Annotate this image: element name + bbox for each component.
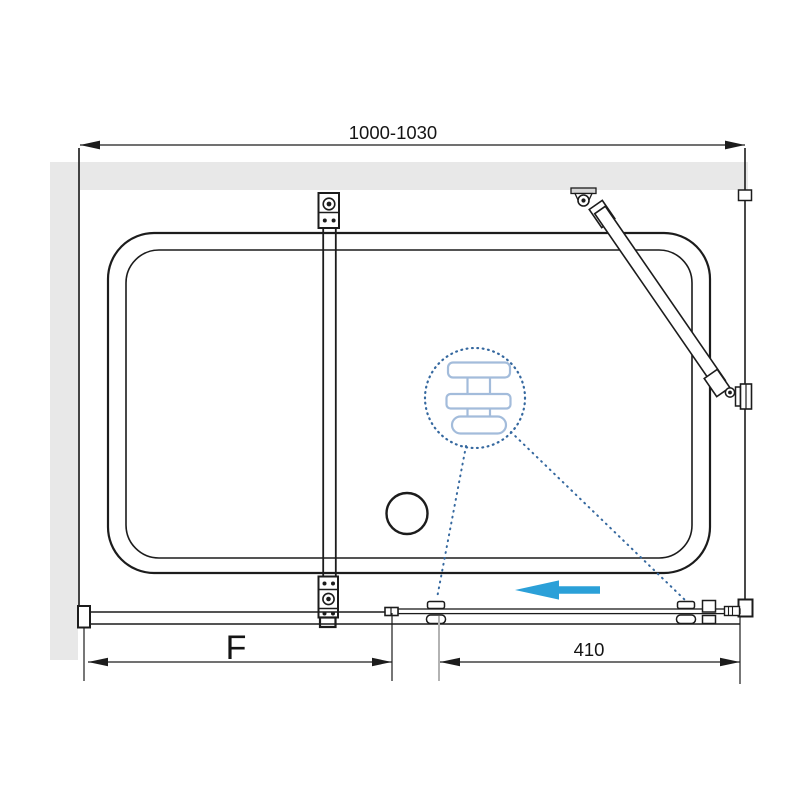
dimension-fixed-width: F — [84, 613, 392, 681]
ceiling-mount-plate — [571, 188, 596, 194]
top-mount-bracket — [319, 193, 340, 228]
left-wall — [50, 162, 78, 660]
side-glass-panel — [739, 148, 753, 617]
walls — [50, 162, 748, 660]
dim-arrow-right — [725, 141, 745, 150]
tray-inner-rim — [126, 250, 692, 558]
roller-mechanism-detail — [447, 363, 511, 434]
dim-fixed-width-label: F — [226, 629, 247, 667]
top-wall — [78, 162, 748, 190]
dim-arrow-right — [720, 658, 740, 666]
callout-leader-left — [437, 446, 466, 598]
dim-arrow-right — [372, 658, 392, 666]
drain-circle — [387, 493, 428, 534]
door-glass-edge — [398, 609, 740, 614]
roller-detail-callout — [425, 348, 685, 600]
dim-arrow-left — [440, 658, 460, 666]
dim-door-width-label: 410 — [574, 639, 605, 660]
center-post — [319, 193, 340, 627]
left-wall-profile — [78, 606, 90, 628]
slide-direction-arrow-icon — [515, 580, 600, 599]
shower-screen-drawing: 1000-1030 — [0, 0, 800, 800]
tray-outer-rim — [108, 233, 710, 573]
diagram-canvas: 1000-1030 — [0, 0, 800, 800]
support-bar — [571, 188, 752, 409]
dimension-door-width: 410 — [439, 616, 740, 684]
dim-arrow-left — [80, 141, 100, 150]
top-wall-bracket — [739, 190, 752, 201]
shower-tray — [108, 233, 710, 573]
rail-wall-connector — [725, 607, 740, 616]
bottom-mount-bracket — [319, 577, 339, 628]
panel-rail-bracket — [703, 601, 716, 624]
dim-arrow-left — [88, 658, 108, 666]
callout-leader-right — [511, 432, 685, 600]
dim-overall-width-label: 1000-1030 — [349, 122, 437, 143]
dimension-overall-width: 1000-1030 — [80, 122, 745, 149]
